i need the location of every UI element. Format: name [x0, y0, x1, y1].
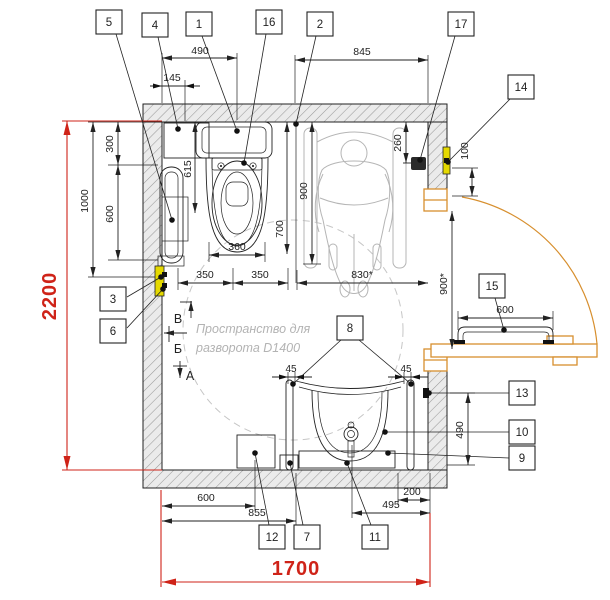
section-a-label: А: [186, 369, 195, 383]
dim-615: 615: [182, 160, 194, 178]
dim-495: 495: [382, 499, 400, 511]
dim-700: 700: [274, 220, 286, 238]
svg-text:15: 15: [486, 281, 499, 293]
svg-text:17: 17: [455, 19, 468, 31]
dim-350-a: 350: [196, 269, 214, 281]
svg-text:8: 8: [347, 323, 353, 335]
svg-text:3: 3: [110, 294, 116, 306]
svg-text:13: 13: [516, 388, 529, 400]
wall-top: [143, 104, 447, 122]
dim-900-door: 900*: [438, 273, 450, 295]
svg-text:2: 2: [317, 19, 323, 31]
svg-text:6: 6: [110, 326, 116, 338]
svg-text:9: 9: [519, 453, 525, 465]
svg-text:16: 16: [263, 17, 276, 29]
dim-45-left: 45: [285, 364, 297, 375]
dim-350-b: 350: [251, 269, 269, 281]
dim-200: 200: [403, 486, 421, 498]
turning-space-note-line2: разворота D1400: [195, 341, 300, 355]
dim-260: 260: [392, 134, 404, 152]
dim-600-bottom: 600: [197, 492, 215, 504]
dim-360: 360: [228, 241, 246, 253]
dim-overall-height: 2200: [39, 272, 61, 321]
dim-900-interior: 900: [298, 182, 310, 200]
svg-text:5: 5: [106, 17, 112, 29]
svg-text:7: 7: [304, 532, 310, 544]
svg-text:1: 1: [196, 19, 202, 31]
section-v-label: В: [174, 312, 182, 326]
dim-600-door: 600: [496, 304, 514, 316]
dim-left-1000: 1000: [79, 189, 91, 213]
dim-855: 855: [248, 507, 266, 519]
section-b-label: Б: [174, 342, 182, 356]
dim-overall-width: 1700: [272, 558, 321, 580]
dim-490-right: 490: [454, 421, 466, 439]
svg-text:4: 4: [152, 20, 159, 32]
dim-45-right: 45: [400, 364, 412, 375]
svg-text:10: 10: [516, 427, 529, 439]
dim-left-300: 300: [104, 135, 116, 153]
svg-text:12: 12: [266, 532, 279, 544]
svg-text:11: 11: [369, 532, 381, 544]
dim-830: 830*: [351, 269, 373, 281]
dim-left-600: 600: [104, 205, 116, 223]
svg-text:14: 14: [515, 82, 528, 94]
door-leaf: [431, 344, 597, 357]
floor-plan-page: Пространство для разворота D1400: [0, 0, 610, 595]
floor-plan-drawing: Пространство для разворота D1400: [0, 0, 610, 595]
turning-space-note-line1: Пространство для: [196, 322, 311, 336]
dim-top-845: 845: [353, 46, 371, 58]
